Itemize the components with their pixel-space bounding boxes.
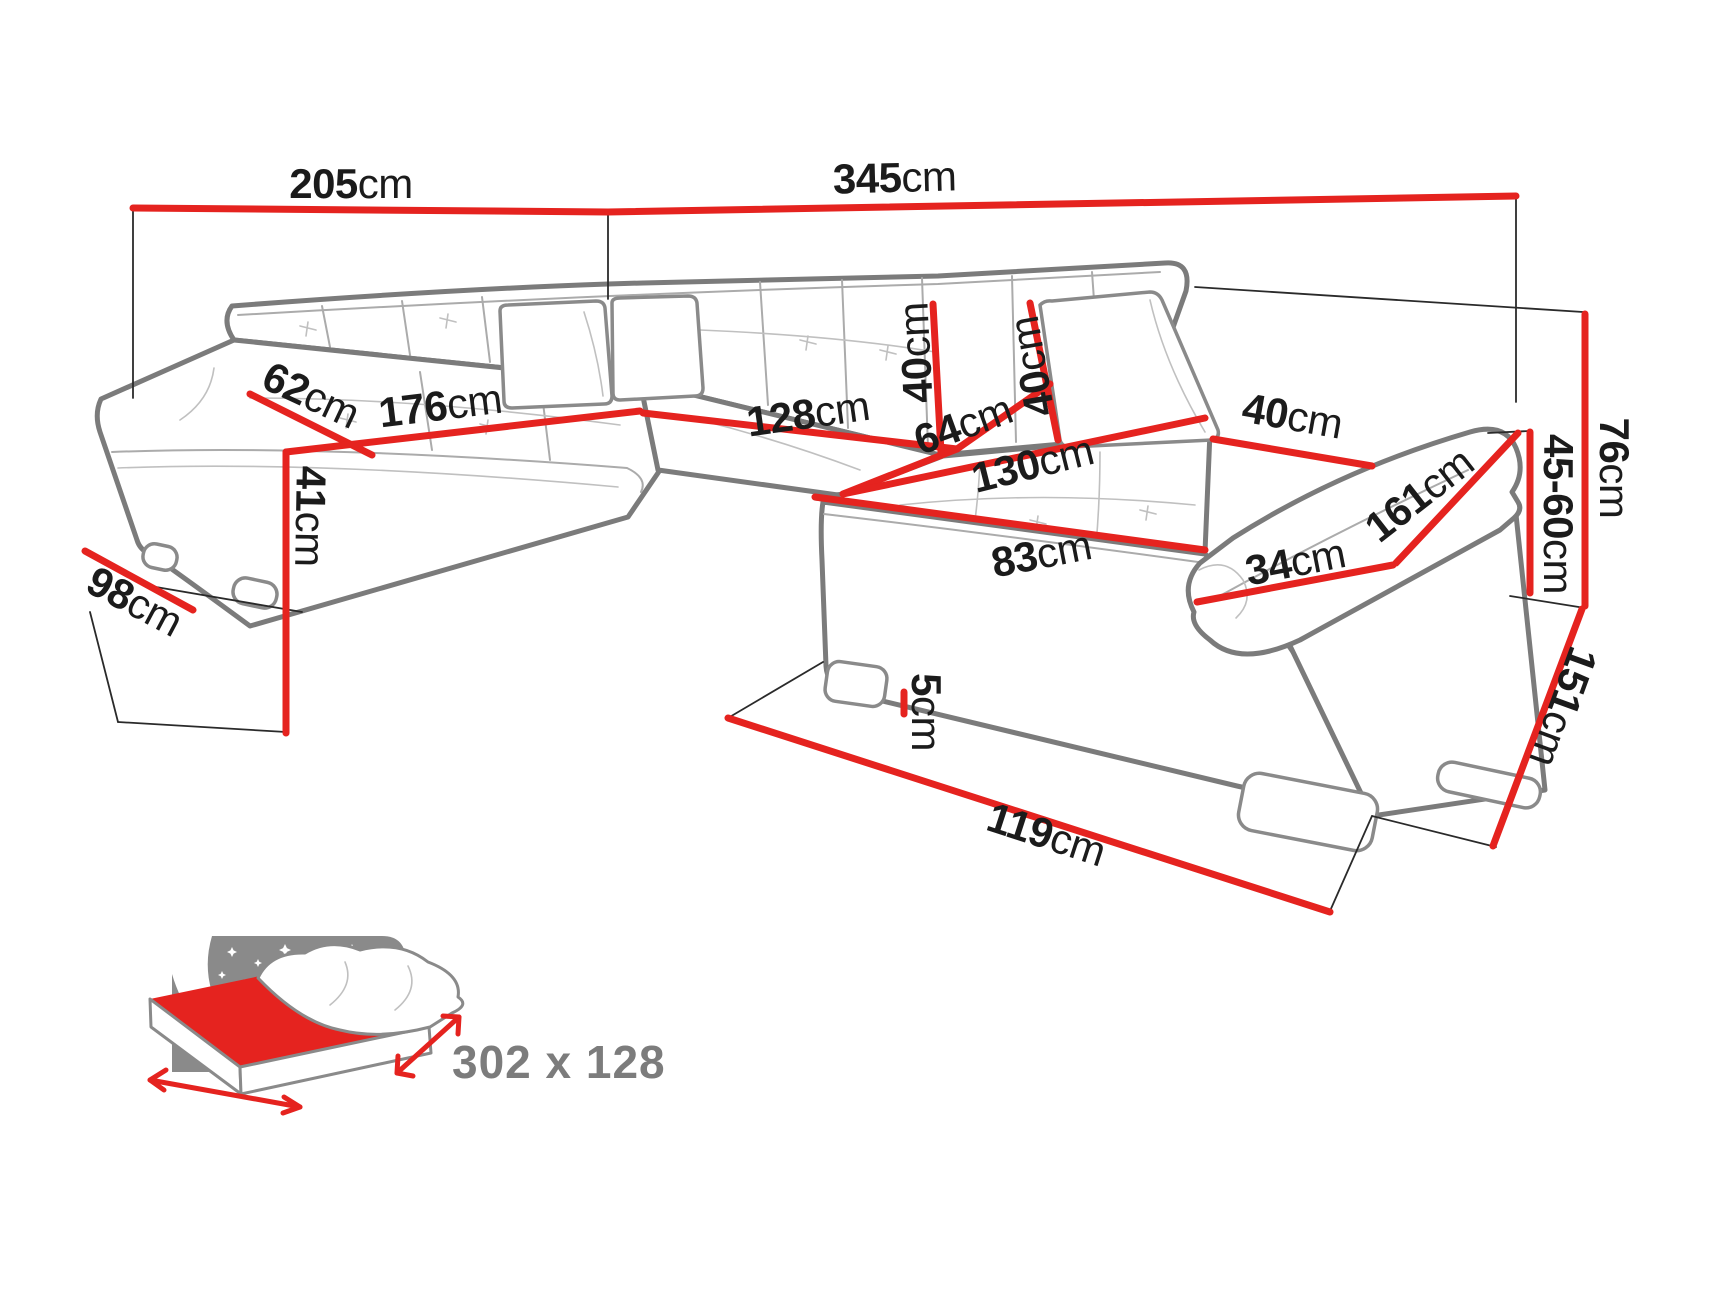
label-40-back: 40cm	[889, 301, 941, 404]
label-45-60: 45-60cm	[1535, 434, 1582, 594]
label-76: 76cm	[1591, 418, 1638, 519]
label-5: 5cm	[903, 673, 950, 751]
label-119: 119cm	[982, 793, 1112, 875]
sleeping-area-icon: 302 x 128	[150, 936, 666, 1113]
label-40-pillow-width: 40cm	[1239, 384, 1346, 448]
label-41: 41cm	[286, 465, 335, 567]
dim-line-40-pillow-width	[1213, 439, 1372, 466]
sofa-dimension-diagram: 205cm 345cm 62cm 176cm 128cm 64cm 40cm 4…	[0, 0, 1726, 1294]
pillow-middle	[612, 296, 703, 400]
dim-line-205	[133, 208, 608, 212]
label-345: 345cm	[832, 152, 957, 202]
sleeping-size-label: 302 x 128	[452, 1036, 666, 1088]
label-205: 205cm	[289, 160, 413, 207]
dim-line-345	[608, 196, 1516, 212]
diagram-canvas: 205cm 345cm 62cm 176cm 128cm 64cm 40cm 4…	[0, 0, 1726, 1294]
